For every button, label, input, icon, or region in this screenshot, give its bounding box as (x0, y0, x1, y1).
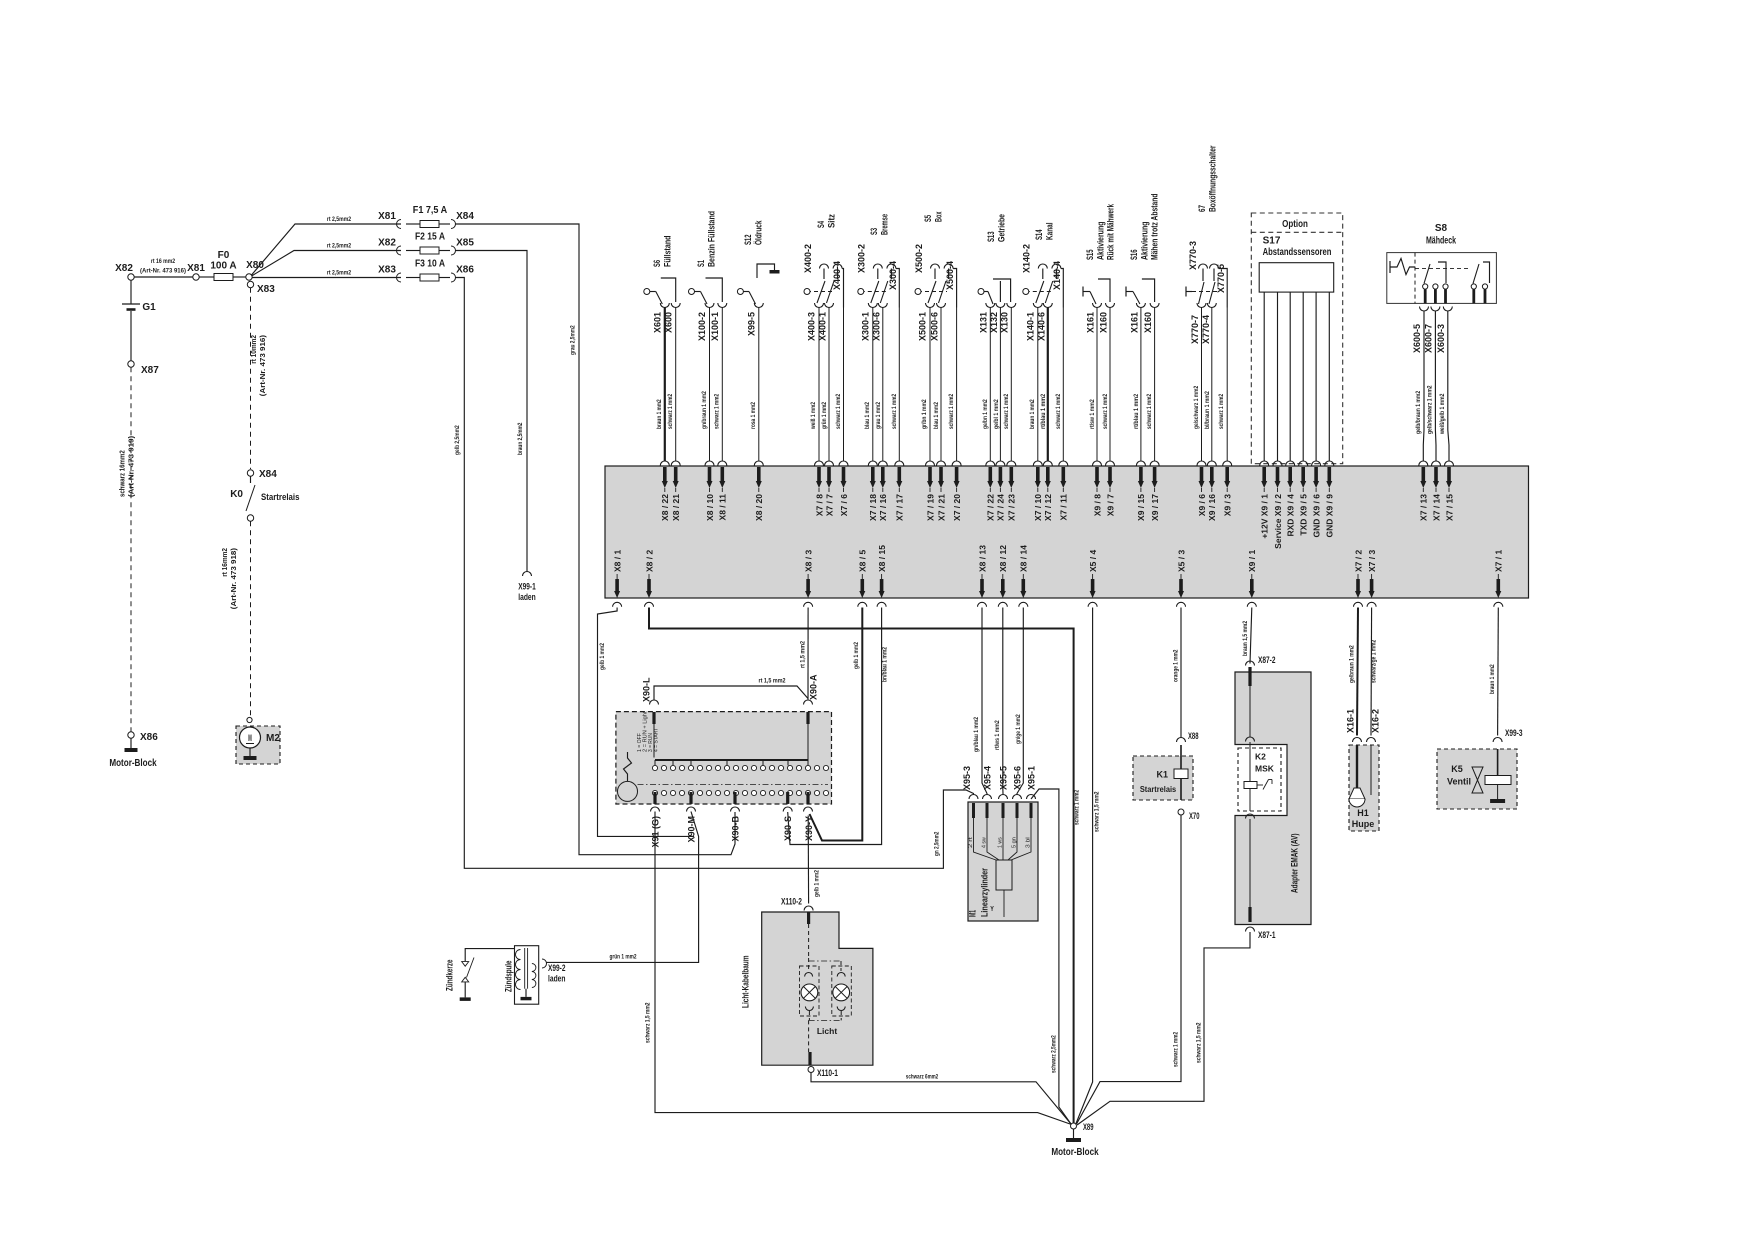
svg-text:bn/blau 1 mm2: bn/blau 1 mm2 (882, 647, 889, 682)
svg-text:K0: K0 (230, 489, 243, 500)
svg-text:X400-1: X400-1 (818, 312, 828, 341)
svg-text:X7 / 24: X7 / 24 (996, 494, 1006, 521)
svg-text:Licht: Licht (817, 1026, 837, 1036)
svg-text:blau 1 mm2: blau 1 mm2 (864, 402, 871, 429)
svg-text:S16: S16 (1129, 250, 1140, 261)
svg-text:braun 1 mm2: braun 1 mm2 (656, 399, 663, 429)
svg-text:F0: F0 (218, 250, 230, 261)
svg-text:X89: X89 (1083, 1122, 1094, 1133)
svg-text:rt/blau 1 mm2: rt/blau 1 mm2 (1133, 394, 1140, 429)
svg-text:X99-2: X99-2 (548, 963, 566, 974)
svg-text:X140-6: X140-6 (1037, 312, 1047, 341)
svg-text:X8 / 15: X8 / 15 (877, 545, 887, 572)
svg-text:schwarz 6mm2: schwarz 6mm2 (906, 1074, 939, 1081)
svg-text:Motor-Block: Motor-Block (109, 757, 156, 769)
svg-text:67: 67 (1197, 205, 1208, 212)
svg-text:rt/blau 1 mm2: rt/blau 1 mm2 (1040, 394, 1047, 429)
svg-text:X70: X70 (1189, 811, 1200, 822)
svg-text:Getriebe: Getriebe (997, 214, 1008, 242)
svg-text:X300-4: X300-4 (888, 261, 898, 290)
svg-text:Zündspule: Zündspule (504, 961, 515, 993)
svg-text:rosa 1 mm2: rosa 1 mm2 (750, 402, 757, 429)
svg-text:X600: X600 (664, 312, 674, 333)
svg-text:bl/braun 1 mm2: bl/braun 1 mm2 (1204, 391, 1211, 429)
svg-text:S4: S4 (816, 221, 827, 228)
svg-text:(Art-Nr. 473 919): (Art-Nr. 473 919) (129, 436, 136, 497)
svg-text:X131: X131 (979, 312, 989, 333)
svg-text:X110-1: X110-1 (817, 1068, 838, 1079)
svg-text:laden: laden (548, 974, 566, 985)
svg-text:X8 / 11: X8 / 11 (718, 494, 728, 521)
svg-text:X99-5: X99-5 (747, 312, 757, 336)
svg-text:X83: X83 (378, 265, 396, 276)
svg-text:weiß 1 mm2: weiß 1 mm2 (810, 402, 817, 430)
svg-text:gn/blau 1 mm2: gn/blau 1 mm2 (973, 717, 980, 752)
svg-text:S3: S3 (869, 228, 880, 235)
svg-text:X87: X87 (141, 365, 159, 376)
svg-text:X7 / 23: X7 / 23 (1007, 494, 1017, 521)
svg-text:schwarz 1 mm2: schwarz 1 mm2 (948, 394, 955, 429)
svg-text:X160: X160 (1099, 312, 1109, 333)
svg-text:rt 16 mm2: rt 16 mm2 (151, 258, 176, 265)
svg-text:X300-2: X300-2 (857, 244, 867, 273)
svg-text:X8 / 14: X8 / 14 (1019, 545, 1029, 572)
svg-text:X7 / 6: X7 / 6 (839, 494, 849, 516)
svg-text:X8 / 10: X8 / 10 (705, 494, 715, 521)
svg-text:X90-A: X90-A (809, 674, 819, 700)
svg-text:X95-5: X95-5 (999, 766, 1009, 790)
svg-text:X600-7: X600-7 (1424, 324, 1434, 353)
svg-text:X9 / 1: X9 / 1 (1247, 550, 1257, 572)
svg-text:S1: S1 (696, 260, 707, 267)
svg-text:S8: S8 (1435, 223, 1448, 234)
svg-text:schwarz 1 mm2: schwarz 1 mm2 (1146, 394, 1153, 429)
svg-text:X9 / 8: X9 / 8 (1092, 494, 1102, 516)
svg-text:X7 / 15: X7 / 15 (1444, 494, 1454, 521)
svg-text:X7 / 14: X7 / 14 (1431, 494, 1441, 521)
svg-text:GND X9 / 6: GND X9 / 6 (1311, 494, 1321, 538)
svg-text:X110-2: X110-2 (781, 897, 802, 908)
svg-text:K1: K1 (1156, 770, 1168, 780)
svg-text:X7 / 18: X7 / 18 (868, 494, 878, 521)
svg-text:Hupe: Hupe (1352, 819, 1375, 829)
svg-text:X7 / 13: X7 / 13 (1419, 494, 1429, 521)
svg-text:Licht-Kabelbaum: Licht-Kabelbaum (741, 956, 752, 1009)
svg-text:X600-3: X600-3 (1436, 324, 1446, 353)
svg-text:gelb 2,5mm2: gelb 2,5mm2 (454, 425, 461, 455)
svg-text:schwarz 16mm2: schwarz 16mm2 (120, 450, 127, 497)
svg-text:X90-M: X90-M (687, 816, 697, 843)
svg-text:M1: M1 (968, 910, 979, 917)
svg-text:X500-4: X500-4 (945, 261, 955, 290)
svg-text:X83: X83 (257, 284, 275, 295)
svg-text:H1: H1 (1357, 808, 1369, 818)
svg-text:schwarz 1 mm2: schwarz 1 mm2 (1055, 394, 1062, 429)
svg-text:X160: X160 (1143, 312, 1153, 333)
svg-text:+12V X9 / 1: +12V X9 / 1 (1260, 494, 1270, 539)
svg-text:grün 1 mm2: grün 1 mm2 (821, 402, 828, 429)
svg-text:(Art-Nr. 473 918): (Art-Nr. 473 918) (231, 548, 238, 609)
svg-text:schwarz 2,5mm2: schwarz 2,5mm2 (1051, 1035, 1058, 1073)
svg-text:X8 / 3: X8 / 3 (803, 550, 813, 572)
svg-text:X500-6: X500-6 (930, 312, 940, 341)
svg-text:Option: Option (1282, 219, 1308, 230)
svg-text:X85: X85 (456, 238, 474, 249)
svg-text:gelb 1 mm2: gelb 1 mm2 (814, 870, 821, 897)
svg-text:Kanal: Kanal (1045, 223, 1056, 241)
svg-text:ge/bl 1 mm2: ge/bl 1 mm2 (993, 399, 1000, 429)
svg-text:X770-7: X770-7 (1190, 315, 1200, 344)
svg-text:100 A: 100 A (210, 261, 236, 272)
svg-text:X8 / 5: X8 / 5 (858, 550, 868, 572)
svg-text:Ventil: Ventil (1447, 777, 1471, 787)
svg-text:rt 1,5 mm2: rt 1,5 mm2 (800, 641, 807, 668)
svg-text:X100-2: X100-2 (697, 312, 707, 341)
svg-text:schwarz 1 mm2: schwarz 1 mm2 (1218, 394, 1225, 429)
svg-text:X90-Y: X90-Y (804, 816, 814, 841)
svg-text:X7 / 2: X7 / 2 (1353, 550, 1363, 572)
svg-text:blau 1 mm2: blau 1 mm2 (933, 402, 940, 429)
svg-text:X95-3: X95-3 (962, 766, 972, 790)
svg-text:X7 / 7: X7 / 7 (824, 494, 834, 516)
svg-text:gelb 1 mm2: gelb 1 mm2 (599, 643, 606, 670)
svg-text:X7 / 17: X7 / 17 (895, 494, 905, 521)
svg-text:Boxöffnungsschalter: Boxöffnungsschalter (1208, 145, 1219, 212)
svg-text:X300-6: X300-6 (872, 312, 882, 341)
svg-text:X500-1: X500-1 (918, 312, 928, 341)
svg-text:Zündkerze: Zündkerze (445, 960, 456, 992)
svg-text:schwarz 1,5 mm2: schwarz 1,5 mm2 (645, 1002, 652, 1043)
svg-text:X9 / 7: X9 / 7 (1105, 494, 1115, 516)
svg-text:X8 / 12: X8 / 12 (998, 545, 1008, 572)
svg-text:S5: S5 (923, 215, 934, 222)
svg-text:X9 / 17: X9 / 17 (1150, 494, 1160, 521)
svg-text:gn/ge 1 mm2: gn/ge 1 mm2 (1015, 714, 1022, 744)
svg-text:X86: X86 (140, 732, 158, 743)
svg-text:X7 / 19: X7 / 19 (925, 494, 935, 521)
svg-text:S12: S12 (743, 235, 754, 246)
svg-text:X16-2: X16-2 (1371, 709, 1381, 733)
svg-text:ge/schwarz 1 mm2: ge/schwarz 1 mm2 (1193, 386, 1200, 429)
svg-text:gn 2,5mm2: gn 2,5mm2 (934, 831, 941, 856)
svg-text:Y: Y (990, 906, 994, 913)
svg-text:X81: X81 (187, 263, 205, 274)
svg-text:X161: X161 (1086, 312, 1096, 333)
svg-text:K2: K2 (1255, 752, 1266, 762)
svg-text:X7 / 11: X7 / 11 (1059, 494, 1069, 521)
svg-text:RXD X9 / 4: RXD X9 / 4 (1286, 494, 1296, 537)
svg-text:Adapter EMAK (AV): Adapter EMAK (AV) (1290, 834, 1301, 894)
svg-text:X8 / 22: X8 / 22 (660, 494, 670, 521)
svg-text:X600-5: X600-5 (1412, 324, 1422, 353)
svg-text:X161: X161 (1130, 312, 1140, 333)
svg-text:gn/braun 1 mm2: gn/braun 1 mm2 (701, 391, 708, 429)
svg-text:braun 1 mm2: braun 1 mm2 (1489, 664, 1496, 694)
svg-text:X7 / 1: X7 / 1 (1494, 550, 1504, 572)
svg-text:rt 16mm2: rt 16mm2 (222, 548, 229, 577)
svg-text:gelb/schwarz 1 mm2: gelb/schwarz 1 mm2 (1427, 385, 1434, 434)
svg-text:schwarz 1 mm2: schwarz 1 mm2 (891, 394, 898, 429)
svg-text:rt 2,5mm2: rt 2,5mm2 (327, 243, 352, 250)
svg-text:grün 1 mm2: grün 1 mm2 (610, 954, 637, 961)
svg-text:X99-1: X99-1 (518, 582, 536, 593)
svg-text:F2 15 A: F2 15 A (415, 232, 445, 243)
svg-text:gr/bn 1 mm2: gr/bn 1 mm2 (921, 399, 928, 429)
svg-text:schwarz 1 mm2: schwarz 1 mm2 (1074, 790, 1081, 825)
svg-text:GND X9 / 9: GND X9 / 9 (1325, 494, 1335, 538)
svg-text:X84: X84 (456, 211, 474, 222)
svg-text:X140-4: X140-4 (1052, 261, 1062, 290)
svg-text:X8 / 13: X8 / 13 (977, 545, 987, 572)
svg-text:X8 / 1: X8 / 1 (612, 550, 622, 572)
svg-text:(Art-Nr. 473 916): (Art-Nr. 473 916) (140, 268, 186, 275)
svg-text:K5: K5 (1451, 764, 1463, 774)
svg-text:X140-2: X140-2 (1022, 244, 1032, 273)
svg-text:Service X9 / 2: Service X9 / 2 (1273, 494, 1283, 549)
svg-text:X132: X132 (989, 312, 999, 333)
svg-text:schwarz 1,5 mm2: schwarz 1,5 mm2 (1196, 1022, 1203, 1063)
svg-text:X99-3: X99-3 (1505, 728, 1523, 739)
svg-text:ge/bn 1 mm2: ge/bn 1 mm2 (982, 399, 989, 429)
svg-text:X7 / 10: X7 / 10 (1033, 494, 1043, 521)
svg-text:X7 / 22: X7 / 22 (986, 494, 996, 521)
svg-text:laden: laden (518, 592, 536, 603)
svg-text:X8 / 20: X8 / 20 (754, 494, 764, 521)
svg-text:rt/sw 1 mm2: rt/sw 1 mm2 (1089, 399, 1096, 429)
svg-text:X7 / 12: X7 / 12 (1043, 494, 1053, 521)
svg-text:braun 1 mm2: braun 1 mm2 (1029, 399, 1036, 429)
svg-text:X5 / 3: X5 / 3 (1176, 550, 1186, 572)
svg-text:weiß/gelb 1 mm2: weiß/gelb 1 mm2 (1439, 393, 1446, 435)
svg-text:schwarz 1 mm2: schwarz 1 mm2 (1102, 394, 1109, 429)
svg-text:X87-1: X87-1 (1258, 930, 1276, 941)
svg-text:X7 / 20: X7 / 20 (952, 494, 962, 521)
svg-text:X9 / 3: X9 / 3 (1223, 494, 1233, 516)
svg-text:X8 / 2: X8 / 2 (644, 550, 654, 572)
svg-text:rt/ws 1 mm2: rt/ws 1 mm2 (994, 720, 1001, 750)
svg-text:X500-2: X500-2 (914, 244, 924, 273)
svg-text:(Art-Nr. 473 916): (Art-Nr. 473 916) (260, 335, 267, 396)
svg-text:X7 / 3: X7 / 3 (1367, 550, 1377, 572)
svg-text:Mähdeck: Mähdeck (1426, 236, 1456, 247)
svg-text:X9 / 15: X9 / 15 (1136, 494, 1146, 521)
svg-text:X9 / 6: X9 / 6 (1197, 494, 1207, 516)
svg-text:orange 1 mm2: orange 1 mm2 (1173, 649, 1180, 682)
svg-text:gelb 1 mm2: gelb 1 mm2 (853, 642, 860, 669)
svg-text:X770-5: X770-5 (1216, 264, 1226, 293)
svg-text:X770-4: X770-4 (1201, 315, 1211, 344)
svg-text:F3 10 A: F3 10 A (415, 259, 445, 270)
svg-text:MSK: MSK (1255, 764, 1275, 774)
svg-text:X95-4: X95-4 (983, 766, 993, 790)
svg-text:schwarz 1,5 mm2: schwarz 1,5 mm2 (1094, 791, 1101, 832)
svg-text:X7 / 21: X7 / 21 (936, 494, 946, 521)
svg-text:X5 / 4: X5 / 4 (1088, 550, 1098, 572)
svg-text:Bremse: Bremse (880, 214, 891, 235)
svg-text:TXD X9 / 5: TXD X9 / 5 (1299, 494, 1309, 536)
svg-text:X86: X86 (456, 265, 474, 276)
svg-text:schwarz 1 mm2: schwarz 1 mm2 (1173, 1032, 1180, 1067)
svg-text:S6: S6 (652, 260, 663, 267)
svg-text:S17: S17 (1263, 236, 1281, 247)
svg-text:rt 2,5mm2: rt 2,5mm2 (327, 270, 352, 277)
svg-text:X7 / 16: X7 / 16 (878, 494, 888, 521)
svg-text:schwarz 1 mm2: schwarz 1 mm2 (714, 394, 721, 429)
svg-text:X770-3: X770-3 (1188, 241, 1198, 270)
svg-text:schwarz 1 mm2: schwarz 1 mm2 (835, 394, 842, 429)
svg-text:X82: X82 (115, 263, 133, 274)
svg-text:X400-4: X400-4 (832, 261, 842, 290)
svg-text:ge/braun 1 mm2: ge/braun 1 mm2 (1349, 645, 1356, 683)
svg-text:X7 / 8: X7 / 8 (814, 494, 824, 516)
svg-text:X16-1: X16-1 (1346, 709, 1356, 733)
svg-text:rt 1,5 mm2: rt 1,5 mm2 (759, 678, 786, 685)
svg-text:Startrelais: Startrelais (1140, 784, 1177, 794)
svg-text:braun 2,5mm2: braun 2,5mm2 (517, 422, 524, 455)
svg-text:grau 2,5mm2: grau 2,5mm2 (570, 325, 577, 355)
svg-text:X130: X130 (1000, 312, 1010, 333)
svg-text:M: M (248, 733, 252, 744)
svg-text:Benzin Füllstand: Benzin Füllstand (707, 211, 718, 267)
svg-text:X95-1: X95-1 (1027, 766, 1037, 790)
svg-text:F1 7,5 A: F1 7,5 A (413, 205, 447, 216)
svg-text:Linearzylinder: Linearzylinder (980, 868, 991, 917)
svg-text:Abstandssensoren: Abstandssensoren (1263, 247, 1332, 258)
svg-text:rt 2,5mm2: rt 2,5mm2 (327, 216, 352, 223)
svg-text:X95-6: X95-6 (1013, 766, 1023, 790)
svg-text:X140-1: X140-1 (1026, 312, 1036, 341)
svg-text:Füllstand: Füllstand (663, 235, 674, 267)
svg-text:X400-2: X400-2 (803, 244, 813, 273)
svg-text:X90-S: X90-S (783, 816, 793, 841)
svg-text:schwarz 1 mm2: schwarz 1 mm2 (667, 394, 674, 429)
svg-text:grau 1 mm2: grau 1 mm2 (875, 402, 882, 429)
svg-text:Rück mit Mähwerk: Rück mit Mähwerk (1106, 204, 1117, 260)
svg-text:X81: X81 (378, 211, 396, 222)
svg-text:X300-1: X300-1 (861, 312, 871, 341)
svg-text:X90-B: X90-B (731, 816, 741, 842)
svg-text:Öldruck: Öldruck (754, 220, 765, 245)
svg-text:X90-L: X90-L (642, 677, 652, 702)
svg-text:X400-3: X400-3 (807, 312, 817, 341)
svg-text:Motor-Block: Motor-Block (1051, 1146, 1098, 1158)
svg-text:X82: X82 (378, 238, 396, 249)
svg-text:Sitz: Sitz (827, 214, 838, 228)
svg-text:X100-1: X100-1 (710, 312, 720, 341)
svg-text:Box: Box (934, 211, 945, 222)
svg-text:X84: X84 (259, 469, 277, 480)
svg-text:X87-2: X87-2 (1258, 655, 1276, 666)
svg-text:S13: S13 (986, 232, 997, 243)
svg-text:Mähen trotz Abstand: Mähen trotz Abstand (1150, 193, 1161, 260)
svg-text:M2: M2 (266, 733, 280, 744)
svg-text:schwarz 1 mm2: schwarz 1 mm2 (1003, 394, 1010, 429)
svg-text:X8 / 21: X8 / 21 (671, 494, 681, 521)
svg-text:Startrelais: Startrelais (261, 492, 300, 503)
svg-text:braun 1,5 mm2: braun 1,5 mm2 (1242, 621, 1249, 656)
svg-text:S14: S14 (1034, 229, 1045, 240)
svg-text:X9 / 16: X9 / 16 (1207, 494, 1217, 521)
svg-text:X88: X88 (1188, 731, 1199, 742)
svg-text:S15: S15 (1085, 249, 1096, 260)
svg-text:gelb/braun 1 mm2: gelb/braun 1 mm2 (1415, 391, 1422, 434)
svg-text:rt 10mm2: rt 10mm2 (251, 335, 258, 364)
svg-text:G1: G1 (142, 302, 156, 313)
svg-text:schwarz/ge 1 mm2: schwarz/ge 1 mm2 (1371, 640, 1378, 683)
svg-text:X601: X601 (653, 312, 663, 333)
